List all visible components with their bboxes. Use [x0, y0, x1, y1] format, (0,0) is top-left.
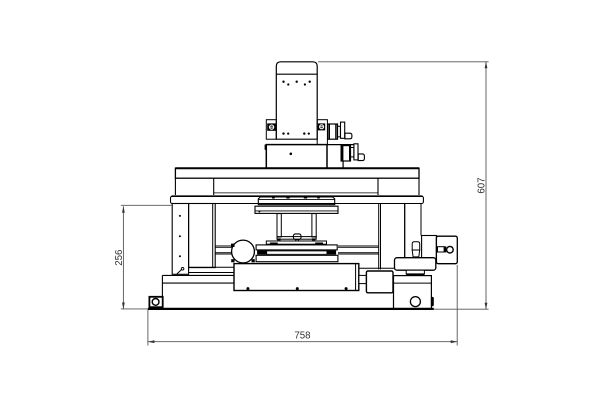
svg-text:607: 607	[477, 177, 488, 193]
svg-text:256: 256	[114, 250, 125, 266]
svg-text:758: 758	[294, 331, 310, 342]
